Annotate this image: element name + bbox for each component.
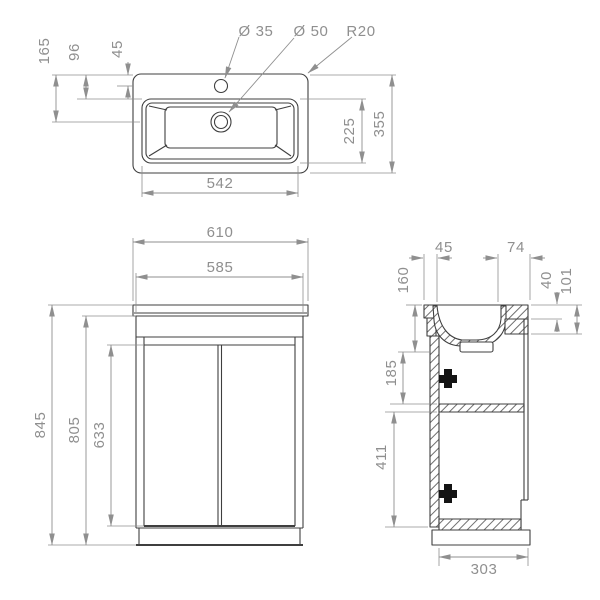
- dim-label-front-overhang: 45: [435, 239, 453, 256]
- dim-label-basin-inner-width: 542: [207, 175, 234, 192]
- tap-hole: [215, 80, 228, 93]
- dim-label-tap-hole-diameter: Ø 35: [239, 23, 274, 40]
- technical-drawing-page: 165 96 45 Ø 35 Ø 50 R20 225 355 542: [0, 0, 600, 600]
- dim-label-door-height: 633: [91, 422, 108, 449]
- dim-label-corner-radius: R20: [346, 23, 375, 40]
- bottom-panel-section: [439, 519, 521, 530]
- dim-label-total-height: 845: [32, 412, 49, 439]
- plinth-section: [432, 530, 530, 545]
- door-section: [430, 336, 439, 527]
- countertop: [133, 305, 308, 316]
- leader-corner-radius: [308, 37, 352, 73]
- dim-label-basin-inner-depth: 225: [341, 118, 358, 145]
- shelf-section: [439, 404, 524, 412]
- side-view: 45 74 160 40 101 185 411 303: [373, 239, 582, 578]
- leader-tap-hole: [225, 37, 239, 78]
- top-view: 165 96 45 Ø 35 Ø 50 R20 225 355 542: [36, 23, 396, 197]
- dim-label-rim-offset: 96: [66, 43, 83, 61]
- dim-label-lower-section: 411: [373, 444, 390, 470]
- front-view: 610 585 845 805 633: [32, 224, 308, 545]
- hinge-bottom: [439, 484, 457, 503]
- hinge-top: [439, 369, 457, 388]
- dim-label-tap-offset: 45: [109, 40, 126, 58]
- side-view-drawing: [424, 305, 530, 545]
- drain-fitting: [460, 342, 493, 352]
- front-view-dimensions: 610 585 845 805 633: [32, 224, 308, 545]
- vanity-dimension-drawing: 165 96 45 Ø 35 Ø 50 R20 225 355 542: [0, 0, 600, 600]
- dim-label-drain-offset: 165: [36, 38, 53, 65]
- dim-label-total-width: 610: [207, 224, 234, 241]
- front-view-drawing: [133, 305, 308, 545]
- dim-label-cabinet-width: 585: [207, 259, 234, 276]
- dim-label-basin-depth-height: 160: [395, 267, 412, 294]
- top-view-drawing: [133, 74, 308, 173]
- dim-label-cabinet-depth: 303: [471, 561, 498, 578]
- dim-label-back-apron-height: 101: [558, 268, 575, 295]
- dim-label-back-ledge: 74: [507, 239, 525, 256]
- dim-label-total-depth: 355: [371, 111, 388, 138]
- dim-label-cabinet-height: 805: [66, 417, 83, 444]
- dim-label-deck-thickness: 40: [538, 271, 555, 289]
- dim-label-upper-section: 185: [383, 360, 400, 387]
- basin-bowl-section: [433, 306, 506, 346]
- dim-label-drain-diameter: Ø 50: [294, 23, 329, 40]
